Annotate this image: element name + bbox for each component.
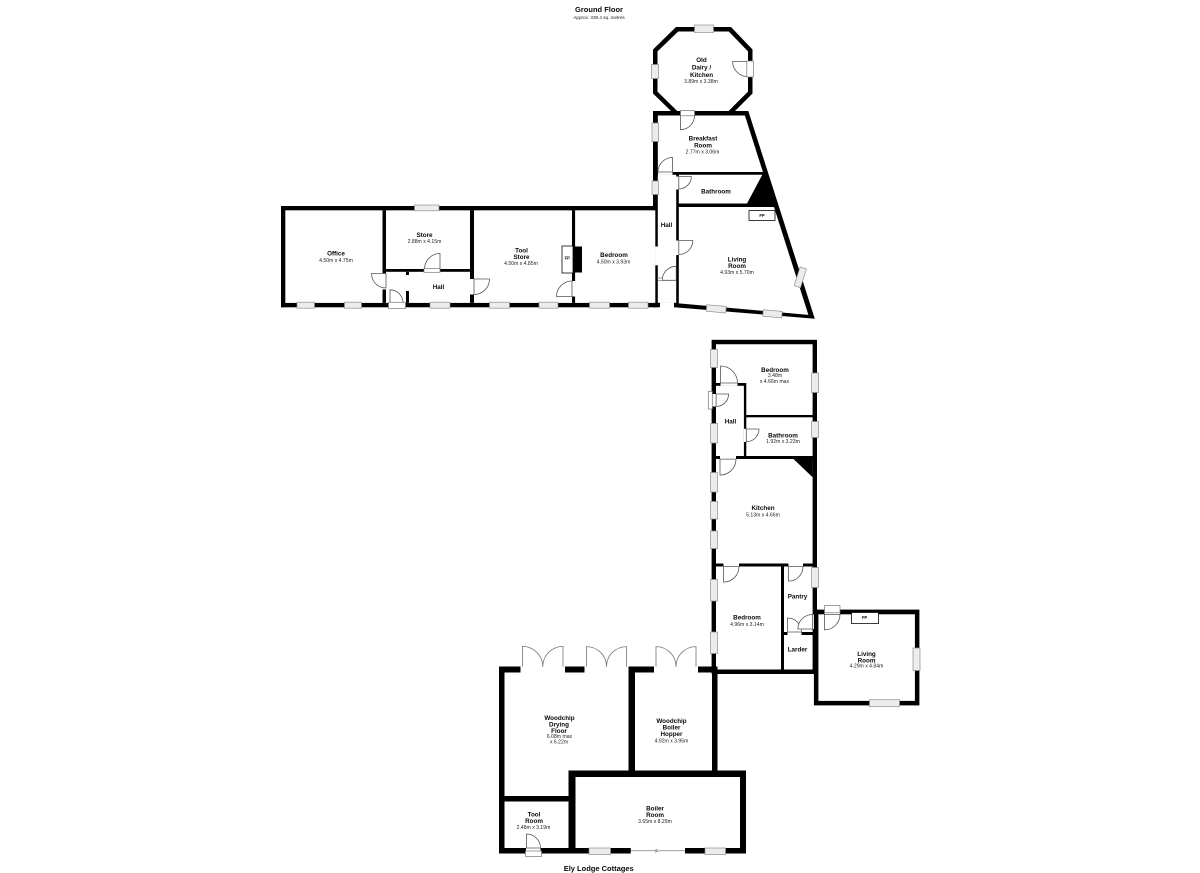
svg-text:4.29m x 4.84m: 4.29m x 4.84m xyxy=(850,664,884,670)
svg-text:FP: FP xyxy=(565,256,571,261)
svg-text:2.77m x 3.06m: 2.77m x 3.06m xyxy=(686,149,720,155)
svg-text:4.50m x 4.85m: 4.50m x 4.85m xyxy=(504,261,538,267)
svg-text:4.50m x 3.93m: 4.50m x 3.93m xyxy=(597,260,631,266)
svg-text:Hall: Hall xyxy=(661,222,673,229)
svg-text:4.50m x 4.75m: 4.50m x 4.75m xyxy=(319,258,353,264)
svg-text:Ground Floor: Ground Floor xyxy=(575,5,623,14)
svg-text:Hall: Hall xyxy=(433,284,445,291)
svg-text:Kitchen: Kitchen xyxy=(690,72,713,79)
svg-text:Bathroom: Bathroom xyxy=(701,189,731,196)
svg-text:x 6.22m: x 6.22m xyxy=(550,739,568,745)
svg-text:Bedroom: Bedroom xyxy=(600,252,628,259)
svg-text:Old: Old xyxy=(696,57,707,64)
svg-text:Breakfast: Breakfast xyxy=(689,136,719,143)
svg-text:Dairy /: Dairy / xyxy=(692,64,712,71)
svg-text:Approx. 339.4 sq. metres: Approx. 339.4 sq. metres xyxy=(573,15,625,20)
svg-text:FP: FP xyxy=(862,615,868,620)
svg-text:FP: FP xyxy=(759,213,765,218)
svg-text:3.65m x 8.29m: 3.65m x 8.29m xyxy=(638,819,672,825)
svg-text:Larder: Larder xyxy=(788,647,808,654)
svg-text:4.96m x 3.14m: 4.96m x 3.14m xyxy=(730,622,764,628)
svg-text:4.93m x 5.70m: 4.93m x 5.70m xyxy=(720,270,754,276)
svg-text:x 4.66m max: x 4.66m max xyxy=(760,379,790,385)
svg-text:Hopper: Hopper xyxy=(660,731,683,738)
svg-text:Pantry: Pantry xyxy=(788,594,808,601)
svg-text:Room: Room xyxy=(646,812,664,819)
svg-text:5.13m x 4.66m: 5.13m x 4.66m xyxy=(746,513,780,519)
svg-text:Hall: Hall xyxy=(725,419,737,426)
svg-text:Ely Lodge Cottages: Ely Lodge Cottages xyxy=(564,864,634,873)
svg-text:Store: Store xyxy=(416,232,433,239)
svg-text:Kitchen: Kitchen xyxy=(751,505,774,512)
svg-text:2.48m x 3.19m: 2.48m x 3.19m xyxy=(517,825,551,831)
svg-text:4.92m x 3.95m: 4.92m x 3.95m xyxy=(655,739,689,745)
svg-text:2.88m x 4.15m: 2.88m x 4.15m xyxy=(408,239,442,245)
svg-text:Room: Room xyxy=(525,818,543,825)
svg-text:Office: Office xyxy=(327,251,345,258)
svg-text:1.92m x 3.23m: 1.92m x 3.23m xyxy=(766,439,800,445)
svg-text:Bedroom: Bedroom xyxy=(733,615,761,622)
svg-text:Store: Store xyxy=(513,254,530,261)
svg-text:Room: Room xyxy=(728,263,746,270)
svg-text:3.89m x 3.38m: 3.89m x 3.38m xyxy=(684,79,718,85)
